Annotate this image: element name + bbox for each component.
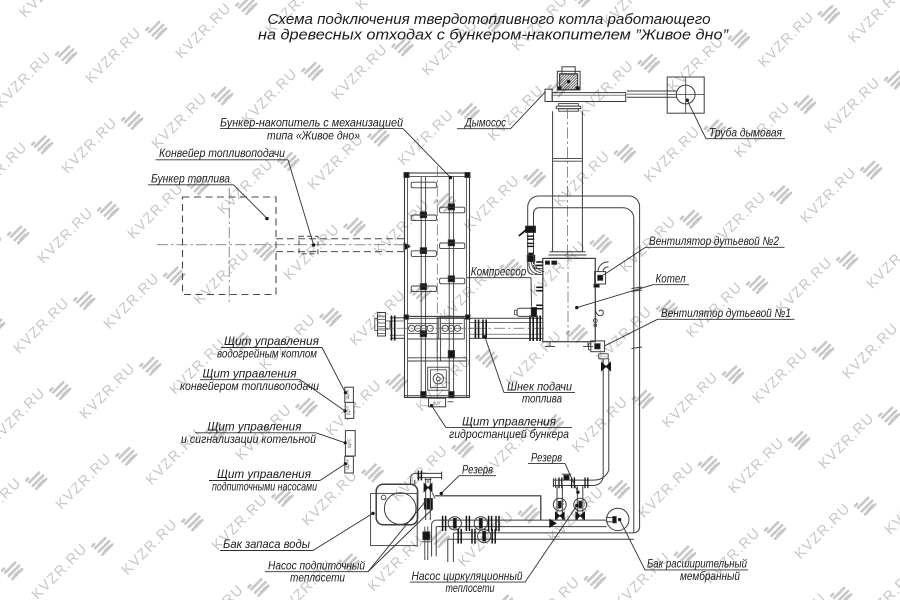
svg-text:Конвейер топливоподачи: Конвейер топливоподачи bbox=[159, 146, 285, 160]
svg-text:на древесных отходах с бункеро: на древесных отходах с бункером-накопите… bbox=[258, 27, 729, 44]
svg-text:ЩУС: ЩУС bbox=[346, 438, 351, 448]
svg-text:Бункер топлива: Бункер топлива bbox=[151, 171, 230, 185]
svg-text:Вентилятор дутьевой №2: Вентилятор дутьевой №2 bbox=[649, 234, 779, 248]
svg-text:Бак запаса воды: Бак запаса воды bbox=[223, 537, 310, 551]
svg-text:мембранный: мембранный bbox=[680, 569, 740, 583]
svg-text:Котел: Котел bbox=[656, 271, 686, 285]
svg-text:Резерв: Резерв bbox=[531, 450, 562, 464]
svg-text:Труба дымовая: Труба дымовая bbox=[709, 125, 783, 139]
svg-text:Компрессор: Компрессор bbox=[471, 264, 527, 278]
svg-text:и сигнализации котельной: и сигнализации котельной bbox=[181, 432, 316, 446]
svg-text:теплосети: теплосети bbox=[290, 571, 345, 585]
svg-text:Вентилятор дутьевой №1: Вентилятор дутьевой №1 bbox=[661, 306, 791, 320]
svg-text:Резерв: Резерв bbox=[462, 462, 493, 476]
svg-text:подпиточными насосами: подпиточными насосами bbox=[212, 480, 317, 494]
svg-text:водогрейным котлом: водогрейным котлом bbox=[217, 347, 317, 361]
svg-text:теплосети: теплосети bbox=[446, 581, 495, 595]
svg-text:гидростанцией бункера: гидростанцией бункера bbox=[449, 427, 569, 441]
svg-text:ЩУГ: ЩУГ bbox=[433, 401, 443, 406]
svg-text:топлива: топлива bbox=[522, 391, 562, 405]
svg-text:Схема подключения твердотоплив: Схема подключения твердотопливного котла… bbox=[268, 11, 711, 28]
svg-text:типа «Живое дно»: типа «Живое дно» bbox=[267, 129, 360, 143]
svg-text:конвейером топливоподачи: конвейером топливоподачи bbox=[180, 379, 319, 393]
svg-text:Дымосос: Дымосос bbox=[463, 115, 506, 129]
svg-text:Бункер-накопитель с механизаци: Бункер-накопитель с механизацией bbox=[220, 115, 403, 129]
